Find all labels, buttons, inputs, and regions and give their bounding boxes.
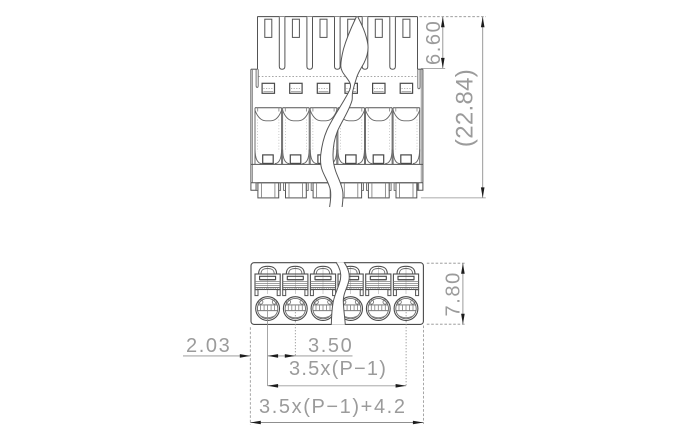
svg-text:2.03: 2.03	[186, 335, 231, 357]
svg-text:6.60: 6.60	[423, 20, 445, 65]
svg-text:3.50: 3.50	[308, 335, 353, 357]
svg-text:3.5x(P−1): 3.5x(P−1)	[289, 358, 387, 380]
svg-text:7.80: 7.80	[442, 271, 464, 316]
svg-text:(22.84): (22.84)	[451, 69, 478, 147]
svg-text:3.5x(P−1)+4.2: 3.5x(P−1)+4.2	[259, 396, 407, 418]
